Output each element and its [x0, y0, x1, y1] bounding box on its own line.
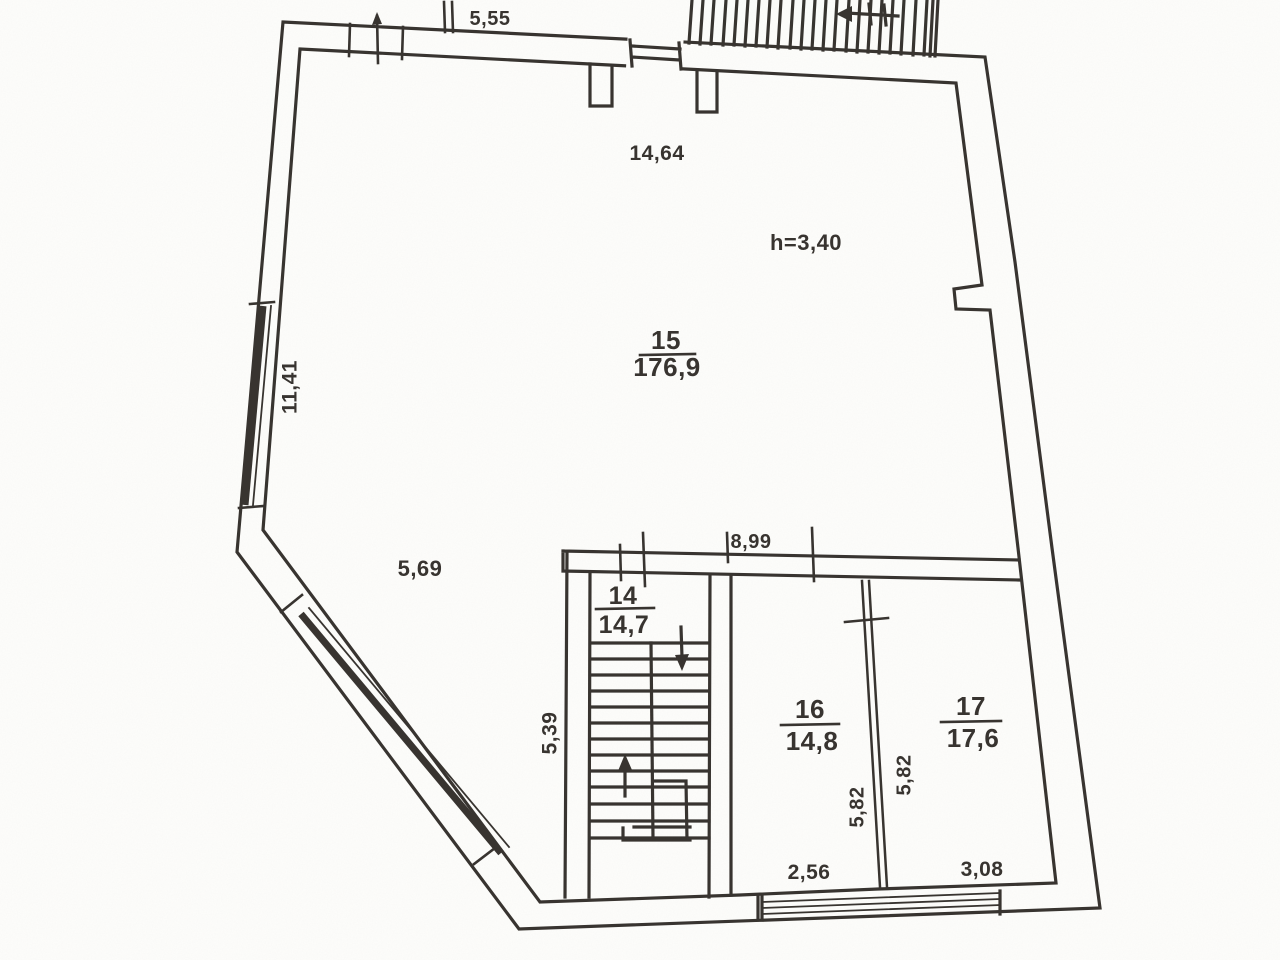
scan-noise	[0, 0, 1280, 960]
floor-plan: 5,55 14,64 h=3,40 15 176,9 11,41 5,69 8,…	[0, 0, 1280, 960]
scanned-page: 5,55 14,64 h=3,40 15 176,9 11,41 5,69 8,…	[0, 0, 1280, 960]
